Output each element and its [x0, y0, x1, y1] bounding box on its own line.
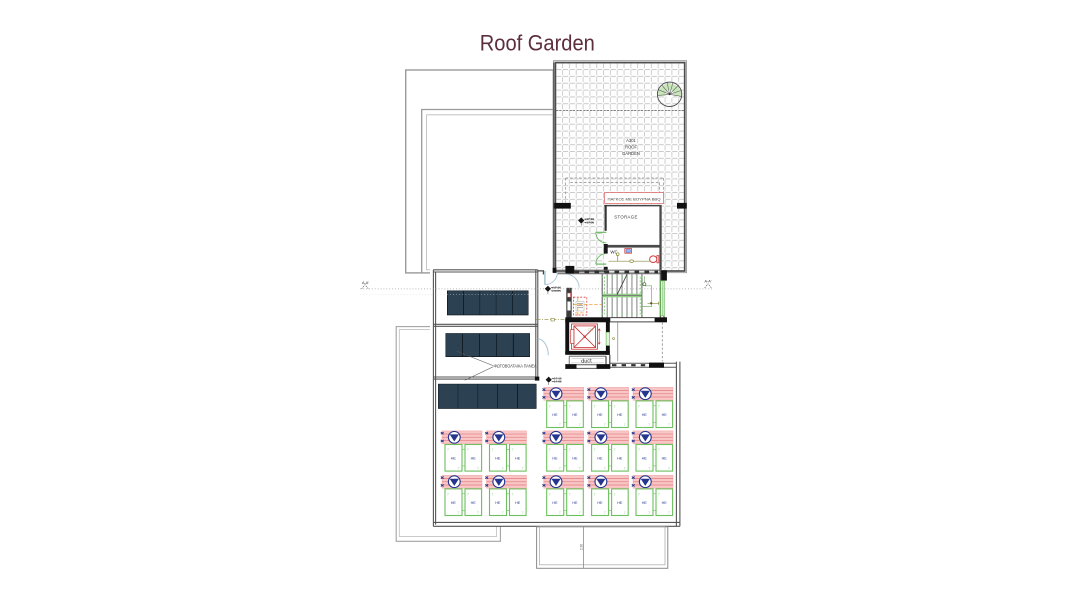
svg-text:STORAGE: STORAGE	[614, 214, 637, 219]
svg-text:duct: duct	[581, 358, 592, 365]
svg-text:ΠΑΓΚOΣ ΜΕ ΒOΥΡΝΑ BBQ: ΠΑΓΚOΣ ΜΕ ΒOΥΡΝΑ BBQ	[608, 196, 661, 201]
svg-text:GARDEN: GARDEN	[622, 151, 640, 156]
svg-text:2.30: 2.30	[580, 544, 584, 550]
svg-text:ROOF: ROOF	[625, 145, 638, 150]
svg-text:ΦΩΤOΒOΛΤΑΙΚΑ ΠΑΝΕΛ: ΦΩΤOΒOΛΤΑΙΚΑ ΠΑΝΕΛ	[494, 363, 537, 368]
svg-text:+17.06: +17.06	[552, 380, 562, 384]
svg-text:2.30: 2.30	[588, 329, 593, 332]
svg-text:+14.05: +14.05	[551, 289, 561, 293]
svg-text:A301: A301	[626, 138, 636, 143]
svg-text:Roof Garden: Roof Garden	[480, 31, 595, 56]
svg-text:A-A': A-A'	[704, 279, 711, 283]
svg-text:A-A': A-A'	[362, 281, 369, 285]
svg-text:+17.06: +17.06	[585, 221, 595, 225]
